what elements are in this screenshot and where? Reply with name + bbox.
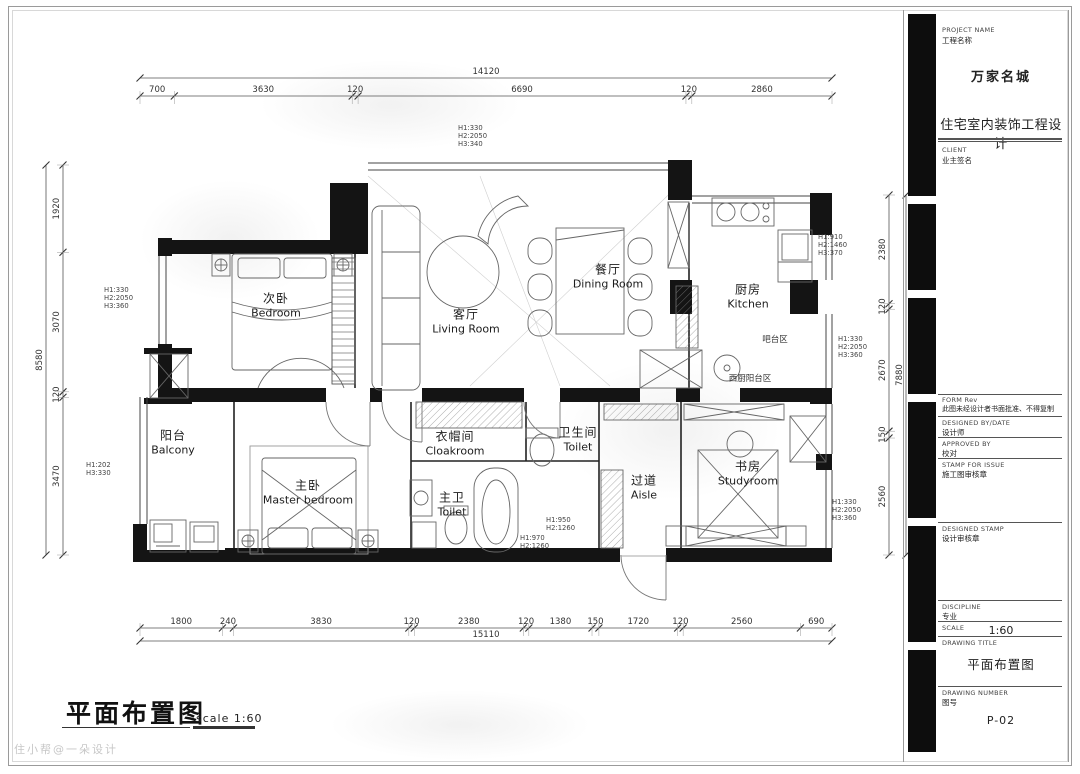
dim-text: 700	[149, 85, 165, 95]
dim-text: 3470	[52, 465, 62, 487]
dim-text: 3830	[310, 617, 332, 627]
wardrobe-secondary	[332, 258, 355, 384]
bathtub	[474, 468, 518, 552]
aisle-closet	[601, 470, 623, 548]
form-label: FORM Rev	[942, 396, 1062, 404]
title-block-divider	[903, 10, 904, 762]
project-name: 万家名城	[936, 66, 1066, 85]
title-block: PROJECT NAME 工程名称 万家名城 住宅室内装饰工程设计 CLIENT…	[936, 14, 1066, 760]
dim-text: 3630	[252, 85, 274, 95]
aisle-cabinet-row	[604, 404, 784, 420]
room-name-zh: 客厅	[432, 308, 500, 323]
study-window-seat	[666, 526, 806, 546]
dim-text: 2670	[878, 359, 888, 381]
room-label-living-room: 客厅Living Room	[432, 308, 500, 337]
drawing-title-footer: 平面布置图	[66, 694, 206, 730]
footer-scale-underline	[193, 726, 255, 729]
height-note-aisle-upper: H1:950H2:1260	[546, 516, 575, 532]
room-label-master-bedroom: 主卧Master bedroom	[263, 479, 353, 508]
height-note-study-right: H1:330H2:2050H3:360	[832, 498, 861, 522]
designed-stamp-label: DESIGNED STAMP	[942, 525, 1062, 533]
study-closet	[790, 416, 826, 462]
room-name-en: Living Room	[432, 323, 500, 337]
designed-by-label: DESIGNED BY/DATE	[942, 419, 1062, 427]
height-note-aisle-lower: H1:970H2:1260	[520, 534, 549, 550]
room-name-en: Balcony	[151, 444, 195, 458]
binding-bar	[908, 298, 936, 394]
stamp-zh: 施工图审核章	[942, 469, 1062, 480]
washbasin-master	[410, 480, 432, 516]
height-note-bar-right: H1:330H2:2050H3:360	[838, 335, 867, 359]
binding-bar	[908, 526, 936, 642]
room-label-kitchen: 厨房Kitchen	[727, 283, 768, 312]
dim-text: 14120	[472, 67, 499, 77]
room-name-zh: 衣帽间	[425, 430, 484, 445]
room-name-zh: 书房	[718, 460, 778, 475]
room-name-en: Bedroom	[251, 307, 301, 321]
room-name-zh: 餐厅	[573, 263, 643, 278]
footer-scale-label: scale 1:60	[196, 712, 263, 725]
room-name-en: Aisle	[631, 489, 657, 503]
dim-text: 15110	[472, 630, 499, 640]
nightstand	[212, 254, 230, 276]
room-label-master-toilet: 主卫Toilet	[438, 491, 467, 520]
room-name-zh: 卫生间	[558, 426, 597, 441]
dim-text: 8580	[35, 349, 45, 371]
approved-by-label: APPROVED BY	[942, 440, 1062, 448]
room-label-dining-room: 餐厅Dining Room	[573, 263, 643, 292]
discipline-label: DISCIPLINE	[942, 603, 1062, 611]
room-name-zh: 过道	[631, 474, 657, 489]
washing-machine	[150, 520, 186, 552]
kitchen-tall-cabinet	[668, 202, 689, 268]
room-name-en: Toilet	[438, 506, 467, 520]
room-label-secondary-bedroom: 次卧Bedroom	[251, 292, 301, 321]
room-name-en: Kitchen	[727, 298, 768, 312]
zone-label-west-kitchen-balcony: 西厨阳台区	[729, 372, 772, 384]
drawing-number-label: DRAWING NUMBER	[942, 689, 1062, 697]
dim-text: 2560	[878, 486, 888, 508]
designed-stamp-zh: 设计审核章	[942, 533, 1062, 544]
room-label-aisle: 过道Aisle	[631, 474, 657, 503]
dim-text: 1920	[52, 198, 62, 220]
dim-text: 2560	[731, 617, 753, 627]
drawing-number-zh: 图号	[942, 697, 1062, 708]
door-secondary-bedroom	[326, 402, 370, 446]
door-entry	[620, 555, 666, 600]
room-name-en: Master bedroom	[263, 494, 353, 508]
binding-bar	[908, 14, 936, 196]
dim-text: 1720	[627, 617, 649, 627]
bedroom-rug-arc	[258, 358, 344, 388]
dim-text: 2380	[878, 239, 888, 261]
footer-underline	[62, 727, 190, 728]
height-note-living-top: H1:330H2:2050H3:340	[458, 124, 487, 148]
fridge	[778, 230, 812, 282]
room-label-balcony: 阳台Balcony	[151, 429, 195, 458]
room-label-guest-toilet: 卫生间Toilet	[558, 426, 597, 455]
dim-text: 3070	[52, 311, 62, 333]
binding-bar	[908, 204, 936, 290]
binding-bar	[908, 402, 936, 518]
drawing-number: P-02	[936, 714, 1066, 727]
bath-cabinet	[412, 522, 436, 548]
drawing-sheet: 7003630120669012028601412018002403830120…	[0, 0, 1080, 774]
balcony-cabinet	[190, 522, 218, 552]
cloakroom-closet	[416, 402, 522, 428]
room-name-zh: 主卧	[263, 479, 353, 494]
dim-text: 1380	[550, 617, 572, 627]
binding-bar	[908, 650, 936, 752]
room-name-en: Studyroom	[718, 475, 778, 489]
zone-label-bar-area: 吧台区	[762, 333, 788, 345]
sofa	[372, 206, 420, 390]
dim-text: 6690	[511, 85, 533, 95]
living-rug	[427, 236, 499, 308]
dim-text: 1800	[170, 617, 192, 627]
project-name-label: PROJECT NAME	[942, 26, 1062, 34]
door-guest-toilet	[524, 402, 560, 438]
room-name-zh: 主卫	[438, 491, 467, 506]
height-note-balcony-left: H1:202H3:330	[86, 461, 111, 477]
drawing-title-label: DRAWING TITLE	[942, 639, 1062, 647]
drawing-title: 平面布置图	[936, 654, 1066, 673]
room-label-study: 书房Studyroom	[718, 460, 778, 489]
watermark-text: 住小帮@一朵设计	[14, 741, 118, 757]
form-note: 此图未经设计者书面批准、不得复制	[942, 404, 1062, 414]
room-name-zh: 阳台	[151, 429, 195, 444]
client-label: CLIENT	[942, 146, 1062, 154]
dim-text: 2380	[458, 617, 480, 627]
stamp-label: STAMP FOR ISSUE	[942, 461, 1062, 469]
height-note-kitchen-right: H1:910H2:1460H3:370	[818, 233, 847, 257]
room-label-cloakroom: 衣帽间Cloakroom	[425, 430, 484, 459]
room-name-en: Toilet	[558, 441, 597, 455]
height-note-bedroom-left: H1:330H2:2050H3:360	[104, 286, 133, 310]
client-label-zh: 业主签名	[942, 155, 1062, 166]
dim-text: 2860	[751, 85, 773, 95]
project-name-label-zh: 工程名称	[942, 35, 1062, 46]
room-name-en: Cloakroom	[425, 445, 484, 459]
room-name-zh: 次卧	[251, 292, 301, 307]
title-block-right-border	[1068, 10, 1069, 762]
room-name-en: Dining Room	[573, 278, 643, 292]
stove	[712, 198, 774, 226]
room-name-zh: 厨房	[727, 283, 768, 298]
dim-text: 690	[808, 617, 824, 627]
